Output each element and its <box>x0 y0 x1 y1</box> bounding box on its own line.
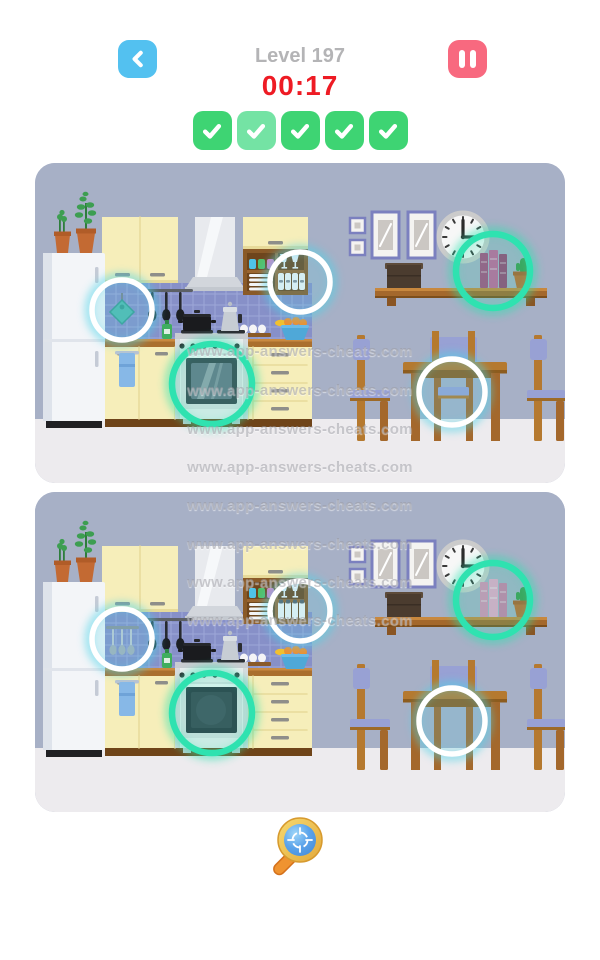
game-screen: Level 197 00:17 www.app-answers-cheats.c… <box>0 0 600 960</box>
magnifier-target-icon <box>258 804 342 888</box>
difference-marker-oven-door[interactable] <box>169 341 255 427</box>
found-checkmark-tile <box>325 111 364 150</box>
scene-panel-bottom[interactable] <box>35 492 565 812</box>
refrigerator <box>43 253 105 428</box>
found-checkmark-tile <box>237 111 276 150</box>
difference-marker-shelf-books[interactable] <box>453 560 533 640</box>
difference-marker-cupboard-glassware[interactable] <box>267 249 333 315</box>
timer-countdown: 00:17 <box>0 70 600 102</box>
found-checkmark-tile <box>193 111 232 150</box>
found-checkmark-tile <box>369 111 408 150</box>
pause-button[interactable] <box>448 40 487 78</box>
difference-marker-chair-under-table[interactable] <box>416 356 488 428</box>
scene-panel-top[interactable] <box>35 163 565 483</box>
difference-marker-tile-wall-item[interactable] <box>89 277 155 343</box>
checkmark-icon <box>243 118 269 144</box>
difference-marker-oven-door[interactable] <box>169 670 255 756</box>
difference-marker-chair-under-table[interactable] <box>416 685 488 757</box>
upper-cabinets <box>102 546 178 612</box>
level-title: Level 197 <box>0 45 600 68</box>
hint-button[interactable] <box>258 804 342 888</box>
checkmark-icon <box>375 118 401 144</box>
progress-checkmarks <box>0 111 600 150</box>
kitchen-scene-top <box>35 163 565 483</box>
pause-icon <box>457 50 478 68</box>
checkmark-icon <box>199 118 225 144</box>
kitchen-scene-bottom <box>35 492 565 812</box>
difference-marker-cupboard-glassware[interactable] <box>267 578 333 644</box>
found-checkmark-tile <box>281 111 320 150</box>
difference-marker-tile-wall-item[interactable] <box>89 606 155 672</box>
checkmark-icon <box>331 118 357 144</box>
difference-marker-shelf-books[interactable] <box>453 231 533 311</box>
checkmark-icon <box>287 118 313 144</box>
refrigerator <box>43 582 105 757</box>
upper-cabinets <box>102 217 178 283</box>
